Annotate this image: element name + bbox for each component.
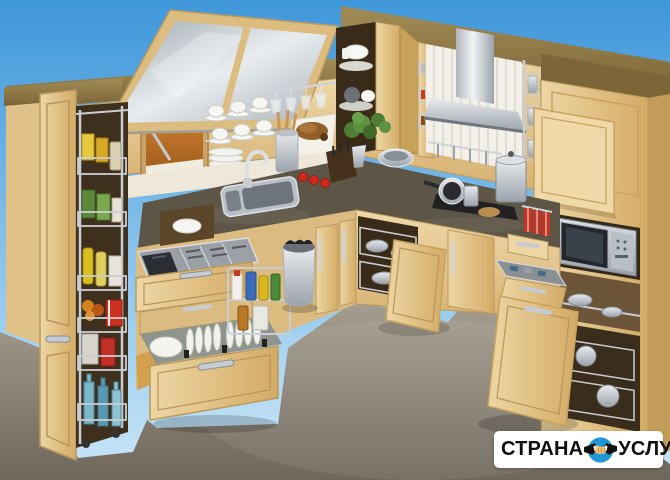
kettle [344, 87, 360, 103]
door-handle [46, 336, 70, 342]
pantry-pullout [76, 106, 128, 448]
carousel-doors [376, 22, 418, 154]
utensil-crock [276, 110, 298, 172]
tall-cabinet-side [648, 94, 670, 462]
watermark-text-right: УСЛУГ [618, 438, 670, 461]
watermark-badge: СТРАНА УСЛУГ [494, 431, 663, 468]
base-door-left [316, 224, 338, 314]
tall-left-open-door [40, 90, 76, 460]
base-door-with-handle [448, 230, 494, 314]
kitchen-photo: СТРАНА УСЛУГ [0, 0, 670, 480]
towel-rail [522, 206, 552, 236]
stockpot [496, 151, 526, 202]
trash-bin [282, 240, 318, 313]
base-door-right [340, 219, 356, 306]
trivet [478, 207, 500, 217]
watermark-text-left: СТРАНА [501, 438, 583, 461]
kitchen-photo-illustration [0, 0, 670, 480]
tall-left-side-panel [6, 96, 40, 344]
mixing-bowl [379, 149, 413, 167]
handshake-icon [584, 435, 617, 465]
steel-cup [464, 186, 478, 206]
teapot [361, 90, 375, 102]
